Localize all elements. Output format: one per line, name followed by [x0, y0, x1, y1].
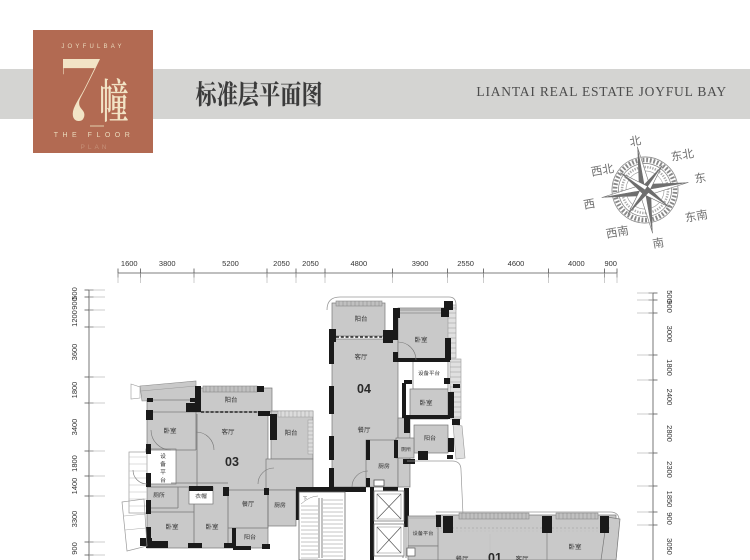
- svg-text:2400: 2400: [665, 389, 674, 406]
- svg-text:3800: 3800: [159, 259, 176, 268]
- svg-text:2050: 2050: [273, 259, 290, 268]
- svg-text:JOYFULBAY: JOYFULBAY: [61, 44, 124, 50]
- svg-text:1200: 1200: [70, 310, 79, 327]
- svg-text:3400: 3400: [70, 419, 79, 436]
- svg-text:04: 04: [357, 382, 371, 396]
- svg-text:4000: 4000: [568, 259, 585, 268]
- svg-text:2050: 2050: [302, 259, 319, 268]
- svg-text:1850: 1850: [665, 491, 674, 508]
- svg-text:900: 900: [70, 297, 79, 310]
- svg-text:900: 900: [665, 300, 674, 313]
- svg-text:1800: 1800: [665, 359, 674, 376]
- svg-text:900: 900: [70, 542, 79, 555]
- svg-text:2550: 2550: [457, 259, 474, 268]
- svg-text:3050: 3050: [665, 538, 674, 555]
- svg-text:900: 900: [665, 512, 674, 525]
- svg-text:3000: 3000: [665, 326, 674, 343]
- svg-text:900: 900: [604, 259, 617, 268]
- svg-text:THE FLOOR: THE FLOOR: [54, 132, 135, 139]
- svg-text:4600: 4600: [508, 259, 525, 268]
- svg-text:2800: 2800: [665, 425, 674, 442]
- svg-text:4800: 4800: [350, 259, 367, 268]
- svg-text:3300: 3300: [70, 511, 79, 528]
- svg-text:1800: 1800: [70, 382, 79, 399]
- svg-text:2300: 2300: [665, 461, 674, 478]
- svg-text:3900: 3900: [412, 259, 429, 268]
- svg-text:5200: 5200: [222, 259, 239, 268]
- svg-text:1600: 1600: [121, 259, 138, 268]
- svg-text:PLAN: PLAN: [81, 144, 110, 151]
- svg-text:01: 01: [488, 551, 502, 560]
- svg-text:3600: 3600: [70, 344, 79, 361]
- svg-text:1800: 1800: [70, 455, 79, 472]
- svg-text:1400: 1400: [70, 478, 79, 495]
- svg-text:LIANTAI REAL ESTATE JOYFUL BAY: LIANTAI REAL ESTATE JOYFUL BAY: [476, 84, 727, 99]
- svg-text:03: 03: [225, 455, 239, 469]
